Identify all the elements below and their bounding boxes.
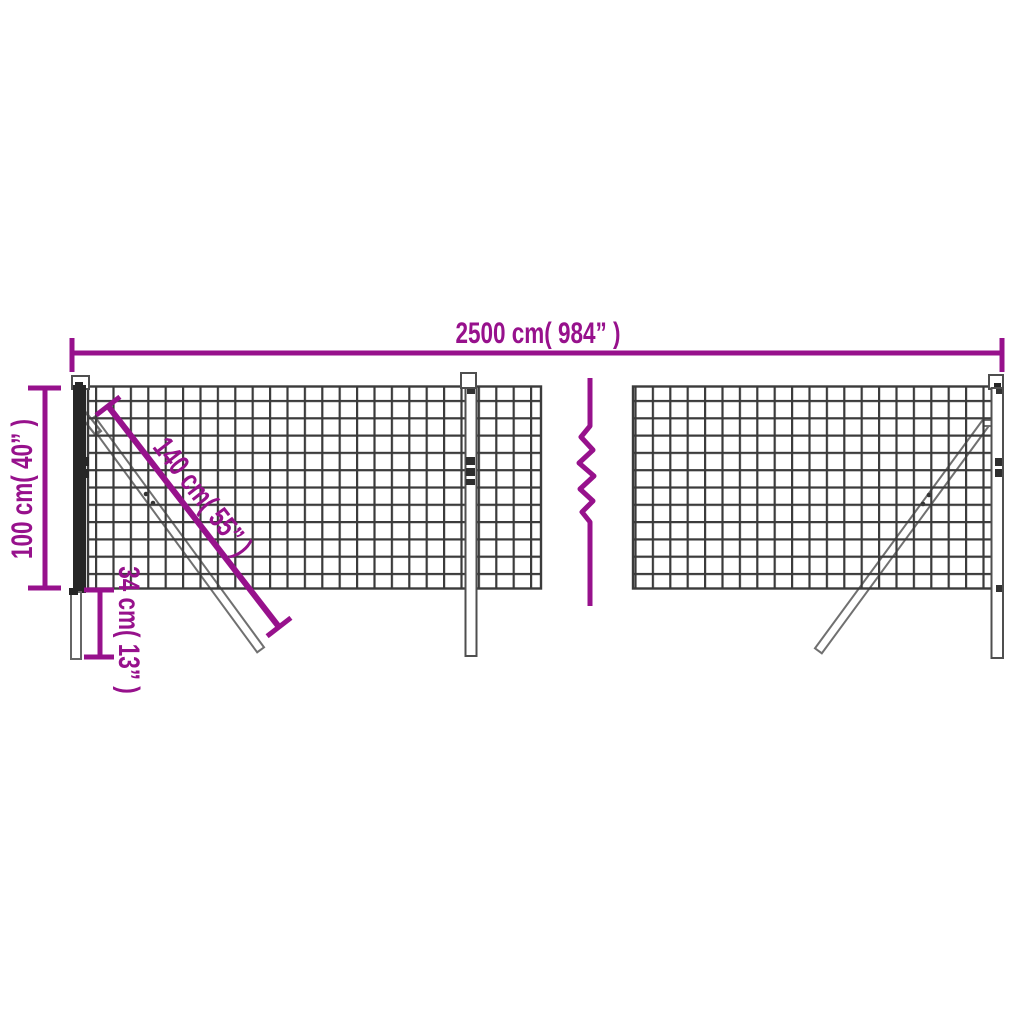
fence-diagram-graphic [0,0,1024,1024]
dimension-line-ground-offset [84,590,114,657]
post-clamp [466,479,475,485]
break-zigzag-symbol [579,378,594,606]
post-cap [461,373,476,388]
fence-post-right [989,375,1003,658]
fence-height-label: 100 cm( 40” ) [6,419,40,559]
post-body [992,388,1004,658]
ground-offset-label: 34 cm( 13” ) [111,566,145,694]
fence-mesh-right-panel [633,387,1000,589]
post-body [73,385,86,593]
post-clamp [995,469,1002,477]
total-width-label: 2500 cm( 984” ) [455,317,620,351]
fence-post-left [69,376,89,659]
post-clamp [466,457,475,465]
post-ground-spike [71,592,81,659]
post-body [466,388,477,656]
fence-dimension-diagram: 2500 cm( 984” ) 100 cm( 40” ) 140 cm( 55… [0,0,1024,1024]
post-clamp [995,458,1002,466]
post-clamp [466,468,475,476]
